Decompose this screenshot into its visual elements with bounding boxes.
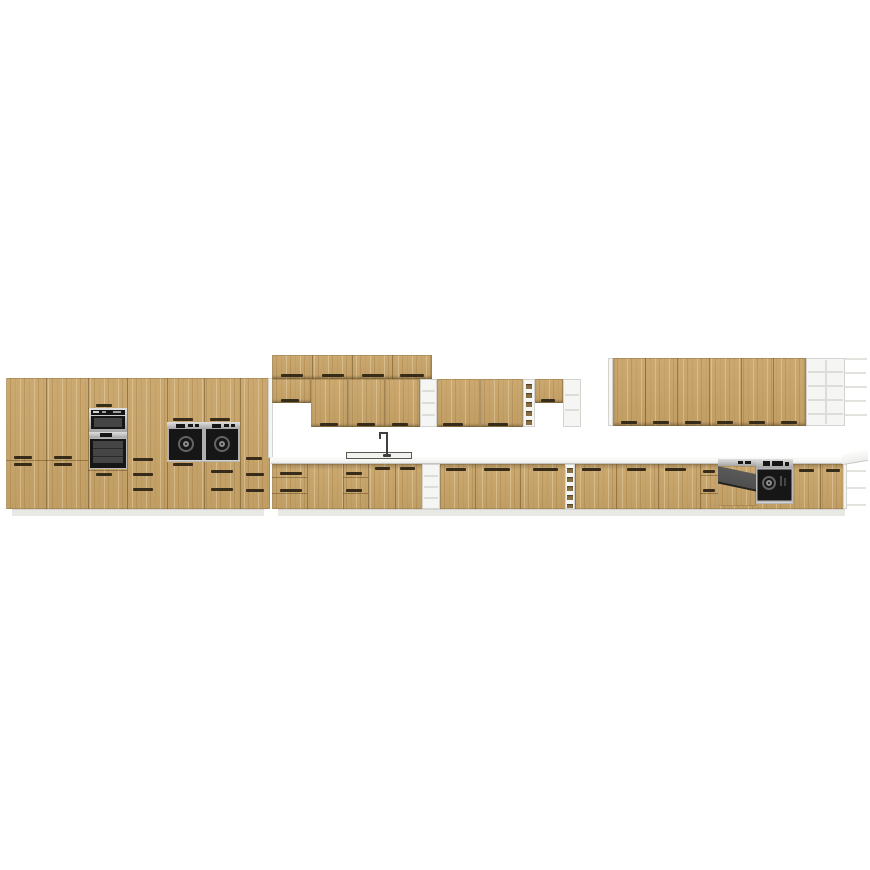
compact-oven-glass [94, 418, 122, 427]
rack-slot [526, 402, 532, 407]
rack-slot [526, 393, 532, 398]
grip-handle [54, 456, 72, 459]
oven-knob [195, 424, 199, 427]
rack-slot [567, 468, 573, 473]
oven-display [212, 424, 221, 428]
shelf [808, 371, 843, 373]
drawer-split [700, 475, 718, 476]
side-shelf [845, 414, 867, 416]
shelf [424, 497, 438, 499]
oven-fan-hub [766, 480, 772, 486]
grip-handle [717, 421, 733, 424]
shelf [424, 475, 438, 477]
built-in-oven [167, 429, 204, 460]
door-gap [475, 464, 476, 509]
rack-slot [567, 495, 573, 500]
oven-knob [224, 424, 229, 427]
compact-oven-button [102, 411, 106, 413]
drawer-split [700, 493, 718, 494]
grip-handle [54, 463, 72, 466]
open-shelf-grid [806, 358, 845, 426]
grip-handle [392, 423, 408, 426]
grip-handle [281, 399, 299, 402]
grip-handle [443, 423, 463, 426]
rack-slot [526, 384, 532, 389]
door-gap [368, 464, 369, 509]
open-shelf-unit [420, 379, 437, 427]
oven-display [176, 424, 185, 428]
door-gap [392, 355, 393, 379]
grip-handle [703, 470, 715, 473]
door-gap [700, 464, 701, 509]
oven-display [772, 461, 783, 466]
grip-handle [400, 467, 415, 470]
wall-cabinet-door [385, 379, 420, 427]
grip-handle [346, 472, 362, 475]
door-gap [440, 464, 441, 509]
drawer-split [272, 493, 307, 494]
door-gap [352, 355, 353, 379]
shelf [424, 486, 438, 488]
oven-shelf-line [93, 456, 123, 457]
oven-fan-hub [183, 441, 189, 447]
shelf [808, 385, 843, 387]
grip-handle [133, 458, 153, 461]
grip-handle [362, 374, 384, 377]
door-split [6, 460, 46, 461]
oven-fan-hub [219, 441, 225, 447]
faucet-stem [386, 434, 388, 456]
grip-handle [703, 489, 715, 492]
end-shelf [847, 470, 866, 472]
side-shelf [845, 400, 866, 402]
grip-handle [211, 488, 233, 491]
grip-handle [799, 469, 814, 472]
drawer-split [343, 493, 368, 494]
grip-handle [133, 488, 153, 491]
door-gap [307, 464, 308, 509]
shelf [808, 413, 843, 415]
compact-oven-display [93, 411, 99, 413]
grip-handle [14, 463, 32, 466]
oven-knob [188, 424, 193, 427]
grip-handle [400, 374, 424, 377]
dishwasher-display [745, 461, 751, 464]
door-split [46, 460, 88, 461]
oven-control-strip [756, 459, 793, 468]
grip-handle [357, 423, 375, 426]
built-in-oven [204, 429, 240, 460]
oven-bottom-trim [756, 502, 793, 504]
oven-bottom-trim [167, 460, 204, 462]
rack-slot [567, 486, 573, 491]
grip-handle [533, 468, 558, 471]
wall-cabinet-door [348, 379, 385, 427]
door-gap [820, 464, 821, 509]
grip-handle [246, 473, 264, 476]
door-gap [645, 358, 646, 426]
grip-handle [173, 463, 193, 466]
drawer-split [272, 477, 307, 478]
sink [346, 452, 412, 459]
wall-cabinet-door [437, 379, 480, 427]
dishwasher-button [738, 461, 743, 464]
worktop-end [842, 450, 868, 466]
end-shelf [847, 504, 866, 506]
oven-knob [763, 461, 770, 466]
door-gap [343, 464, 344, 509]
wall-cabinet-door [311, 379, 348, 427]
grip-handle [582, 468, 601, 471]
grip-handle [246, 457, 262, 460]
oven-display [100, 433, 112, 437]
compact-oven-button [113, 411, 121, 413]
built-in-oven [89, 438, 127, 469]
grip-handle [484, 468, 510, 471]
grip-handle [96, 404, 112, 407]
oven-knob [785, 462, 789, 466]
faucet-tip [379, 434, 381, 439]
shelf [422, 414, 435, 416]
grip-handle [280, 472, 302, 475]
compact-oven [89, 408, 127, 432]
faucet-base [383, 454, 391, 457]
rack-slot [526, 411, 532, 416]
shelf [808, 399, 843, 401]
plinth [278, 509, 845, 516]
grip-handle [653, 421, 669, 424]
oven-bottom-trim [204, 460, 240, 462]
oven-control-strip [204, 422, 240, 429]
grip-handle [665, 468, 686, 471]
door-gap [741, 358, 742, 426]
grip-handle [246, 489, 264, 492]
grip-handle [133, 473, 153, 476]
door-gap [520, 464, 521, 509]
door-gap [395, 464, 396, 509]
under-counter-oven [756, 459, 793, 505]
rack-slot [526, 420, 532, 425]
shelf [422, 390, 435, 392]
grip-handle [488, 423, 508, 426]
shelf [422, 402, 435, 404]
door-gap [658, 464, 659, 509]
dishwasher [718, 459, 756, 506]
drawer-split [343, 477, 368, 478]
grip-handle [685, 421, 701, 424]
oven-door [756, 468, 793, 502]
door-gap [677, 358, 678, 426]
door-gap [773, 358, 774, 426]
grip-handle [627, 468, 646, 471]
door-gap [616, 464, 617, 509]
grip-handle [281, 374, 303, 377]
grip-handle [826, 469, 840, 472]
grip-handle [280, 489, 302, 492]
grip-handle [210, 418, 230, 421]
grip-handle [346, 489, 362, 492]
cabinet-gap [127, 378, 128, 509]
grip-handle [749, 421, 765, 424]
plinth [12, 509, 264, 516]
end-shelf [847, 487, 866, 489]
door-gap [575, 464, 576, 509]
side-shelf [845, 386, 867, 388]
side-shelf [845, 358, 867, 360]
narrow-open-rack [523, 379, 535, 427]
open-shelf-unit [422, 464, 440, 509]
oven-glass-reflection [780, 476, 782, 486]
grip-handle [446, 468, 466, 471]
door-gap [312, 355, 313, 379]
door-gap [709, 358, 710, 426]
grip-handle [375, 467, 390, 470]
side-shelf [845, 372, 866, 374]
grip-handle [320, 423, 338, 426]
cabinet-gap [46, 378, 47, 509]
rack-slot [567, 477, 573, 482]
door-split [88, 470, 127, 471]
cabinet-gap [240, 378, 241, 509]
grip-handle [781, 421, 797, 424]
grip-handle [173, 418, 193, 421]
grip-handle [621, 421, 637, 424]
oven-shelf-line [93, 448, 123, 449]
bottle-rack [565, 464, 575, 509]
grip-handle [322, 374, 344, 377]
oven-control-strip [167, 422, 204, 429]
kitchen-product-render [0, 0, 870, 870]
grip-handle [541, 399, 555, 402]
shelf [565, 394, 579, 396]
grip-handle [96, 473, 112, 476]
rack-slot [567, 504, 573, 508]
dishwasher-control-strip [718, 459, 756, 466]
grip-handle [211, 470, 233, 473]
shelf [565, 409, 579, 411]
oven-glass-reflection [784, 478, 786, 486]
open-shelf-unit [563, 379, 581, 427]
grip-handle [14, 456, 32, 459]
oven-glass [93, 441, 123, 463]
oven-knob [231, 424, 235, 427]
wall-cabinet-door [480, 379, 523, 427]
